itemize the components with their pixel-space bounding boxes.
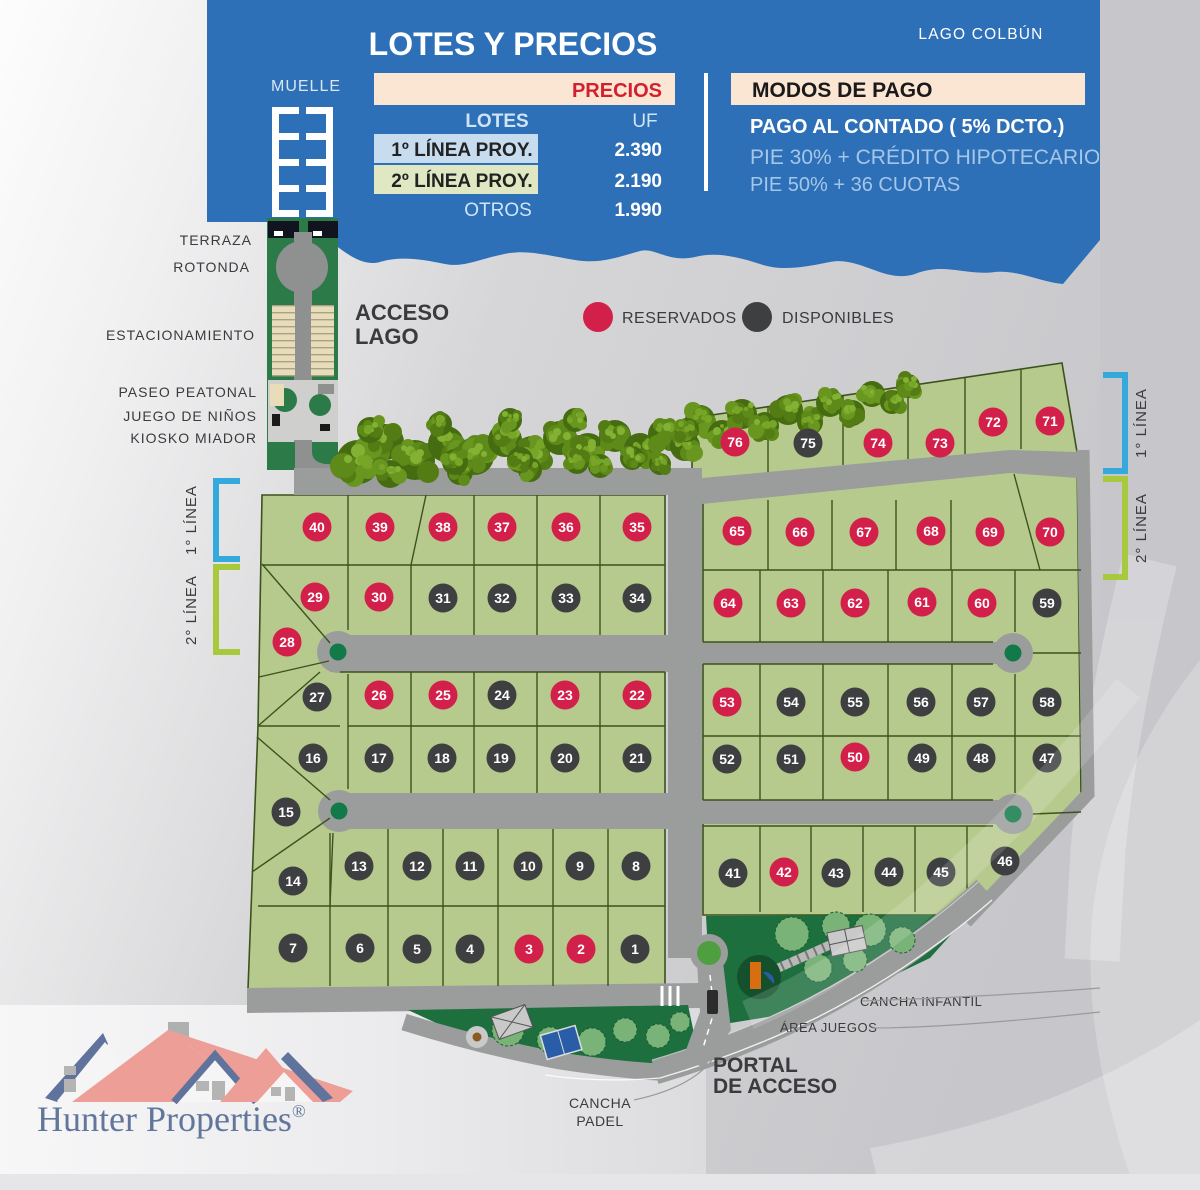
svg-text:PASEO PEATONAL: PASEO PEATONAL (119, 384, 258, 400)
svg-text:23: 23 (557, 687, 573, 703)
svg-text:55: 55 (847, 694, 863, 710)
svg-text:73: 73 (932, 435, 948, 451)
svg-text:3: 3 (525, 941, 533, 957)
svg-text:RESERVADOS: RESERVADOS (622, 310, 737, 327)
svg-text:PIE 30% + CRÉDITO HIPOTECARIO: PIE 30% + CRÉDITO HIPOTECARIO (750, 146, 1100, 169)
svg-text:21: 21 (629, 750, 645, 766)
svg-text:36: 36 (558, 519, 574, 535)
svg-text:52: 52 (719, 751, 735, 767)
svg-text:31: 31 (435, 590, 451, 606)
svg-text:2.190: 2.190 (614, 171, 662, 192)
svg-text:ÁREA JUEGOS: ÁREA JUEGOS (780, 1020, 877, 1035)
svg-text:28: 28 (279, 634, 295, 650)
svg-text:ACCESO: ACCESO (355, 300, 449, 325)
svg-text:CANCHA: CANCHA (569, 1095, 631, 1111)
svg-text:68: 68 (923, 523, 939, 539)
svg-text:62: 62 (847, 595, 863, 611)
svg-text:76: 76 (727, 434, 743, 450)
svg-text:DE ACCESO: DE ACCESO (713, 1075, 837, 1098)
svg-text:64: 64 (720, 595, 736, 611)
svg-text:63: 63 (783, 595, 799, 611)
svg-text:KIOSKO MIADOR: KIOSKO MIADOR (130, 430, 257, 446)
svg-text:2° LÍNEA: 2° LÍNEA (1133, 493, 1150, 563)
svg-text:6: 6 (356, 940, 364, 956)
svg-text:66: 66 (792, 524, 808, 540)
svg-text:ESTACIONAMIENTO: ESTACIONAMIENTO (106, 327, 255, 343)
svg-text:DISPONIBLES: DISPONIBLES (782, 310, 894, 327)
svg-text:29: 29 (307, 589, 323, 605)
svg-text:50: 50 (847, 749, 863, 765)
svg-text:PRECIOS: PRECIOS (572, 80, 662, 102)
svg-text:LAGO COLBÚN: LAGO COLBÚN (918, 26, 1043, 43)
svg-text:26: 26 (371, 687, 387, 703)
svg-text:54: 54 (783, 694, 799, 710)
svg-text:1° LÍNEA: 1° LÍNEA (1133, 388, 1150, 458)
svg-text:16: 16 (305, 750, 321, 766)
svg-text:JUEGO DE NIÑOS: JUEGO DE NIÑOS (123, 408, 257, 424)
svg-text:1.990: 1.990 (614, 200, 662, 221)
svg-text:40: 40 (309, 519, 325, 535)
svg-text:5: 5 (413, 941, 421, 957)
svg-text:PADEL: PADEL (576, 1113, 623, 1129)
svg-text:51: 51 (783, 751, 799, 767)
svg-text:37: 37 (494, 519, 510, 535)
svg-text:UF: UF (632, 111, 657, 132)
svg-text:OTROS: OTROS (464, 200, 532, 221)
svg-text:72: 72 (985, 414, 1001, 430)
svg-text:38: 38 (435, 519, 451, 535)
svg-text:MODOS DE PAGO: MODOS DE PAGO (752, 79, 932, 102)
svg-text:69: 69 (982, 524, 998, 540)
svg-text:TERRAZA: TERRAZA (180, 232, 252, 248)
svg-text:1: 1 (631, 941, 639, 957)
svg-text:70: 70 (1042, 524, 1058, 540)
svg-text:41: 41 (725, 865, 741, 881)
svg-text:44: 44 (881, 864, 897, 880)
svg-text:8: 8 (632, 858, 640, 874)
svg-text:11: 11 (463, 858, 478, 874)
svg-text:LOTES Y PRECIOS: LOTES Y PRECIOS (369, 26, 658, 62)
svg-text:20: 20 (557, 750, 573, 766)
svg-text:35: 35 (629, 519, 645, 535)
svg-text:60: 60 (974, 595, 990, 611)
svg-text:ROTONDA: ROTONDA (173, 259, 250, 275)
svg-text:75: 75 (800, 435, 816, 451)
svg-text:43: 43 (828, 865, 844, 881)
svg-text:59: 59 (1039, 595, 1055, 611)
svg-text:13: 13 (351, 858, 367, 874)
svg-text:4: 4 (466, 941, 474, 957)
svg-text:17: 17 (371, 750, 387, 766)
svg-text:56: 56 (913, 694, 929, 710)
svg-text:15: 15 (278, 804, 294, 820)
svg-text:MUELLE: MUELLE (271, 78, 341, 95)
svg-text:33: 33 (558, 590, 574, 606)
svg-text:LAGO: LAGO (355, 324, 419, 349)
svg-text:LOTES: LOTES (465, 111, 528, 132)
svg-text:61: 61 (914, 594, 930, 610)
svg-text:65: 65 (729, 523, 745, 539)
svg-text:2.390: 2.390 (614, 140, 662, 161)
svg-text:2° LÍNEA: 2° LÍNEA (183, 575, 200, 645)
svg-text:25: 25 (435, 687, 451, 703)
svg-text:74: 74 (870, 435, 886, 451)
svg-text:12: 12 (409, 858, 425, 874)
svg-text:48: 48 (973, 750, 989, 766)
svg-text:PAGO AL CONTADO ( 5% DCTO.): PAGO AL CONTADO ( 5% DCTO.) (750, 116, 1064, 138)
svg-text:39: 39 (372, 519, 388, 535)
svg-text:7: 7 (289, 940, 297, 956)
svg-text:19: 19 (493, 750, 509, 766)
svg-text:14: 14 (285, 873, 301, 889)
svg-text:27: 27 (309, 689, 325, 705)
svg-text:Hunter Properties®: Hunter Properties® (37, 1099, 306, 1139)
svg-text:49: 49 (914, 750, 930, 766)
svg-text:58: 58 (1039, 694, 1055, 710)
svg-text:2: 2 (577, 941, 585, 957)
svg-text:PIE 50% + 36 CUOTAS: PIE 50% + 36 CUOTAS (750, 174, 960, 196)
svg-text:24: 24 (494, 687, 510, 703)
svg-text:1º LÍNEA PROY.: 1º LÍNEA PROY. (391, 139, 532, 161)
svg-text:57: 57 (973, 694, 989, 710)
svg-text:18: 18 (434, 750, 450, 766)
svg-text:2º LÍNEA PROY.: 2º LÍNEA PROY. (391, 170, 532, 192)
svg-text:42: 42 (776, 864, 792, 880)
svg-text:9: 9 (576, 858, 584, 874)
svg-text:67: 67 (856, 524, 872, 540)
svg-text:30: 30 (371, 589, 387, 605)
svg-text:32: 32 (494, 590, 510, 606)
svg-text:22: 22 (629, 687, 645, 703)
svg-text:46: 46 (997, 853, 1013, 869)
svg-text:53: 53 (719, 694, 735, 710)
svg-text:1° LÍNEA: 1° LÍNEA (183, 485, 200, 555)
svg-text:PORTAL: PORTAL (713, 1054, 798, 1077)
svg-text:71: 71 (1042, 413, 1058, 429)
svg-text:10: 10 (520, 858, 536, 874)
svg-text:34: 34 (629, 590, 645, 606)
